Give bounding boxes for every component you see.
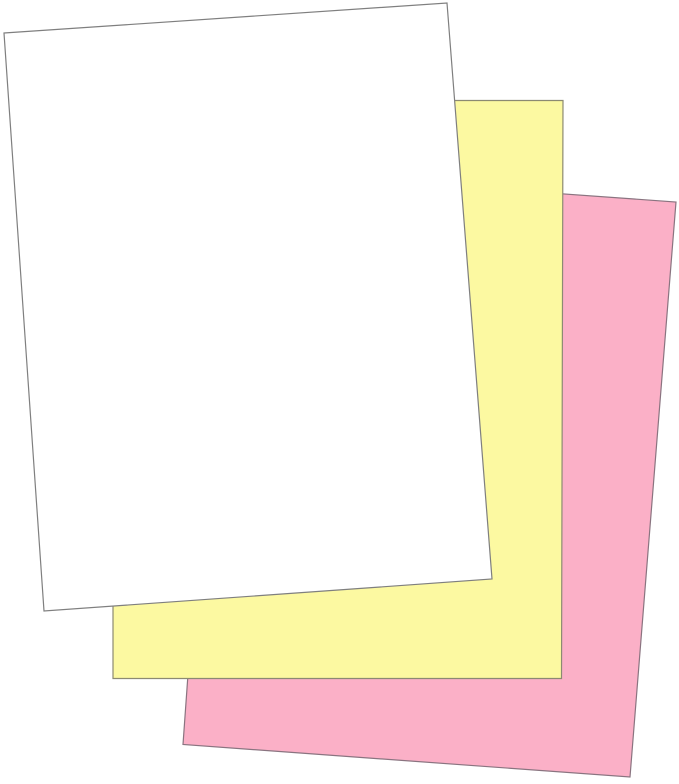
paper-sheets-graphic [0, 0, 679, 784]
white-sheet [4, 3, 492, 611]
product-image [0, 0, 679, 784]
